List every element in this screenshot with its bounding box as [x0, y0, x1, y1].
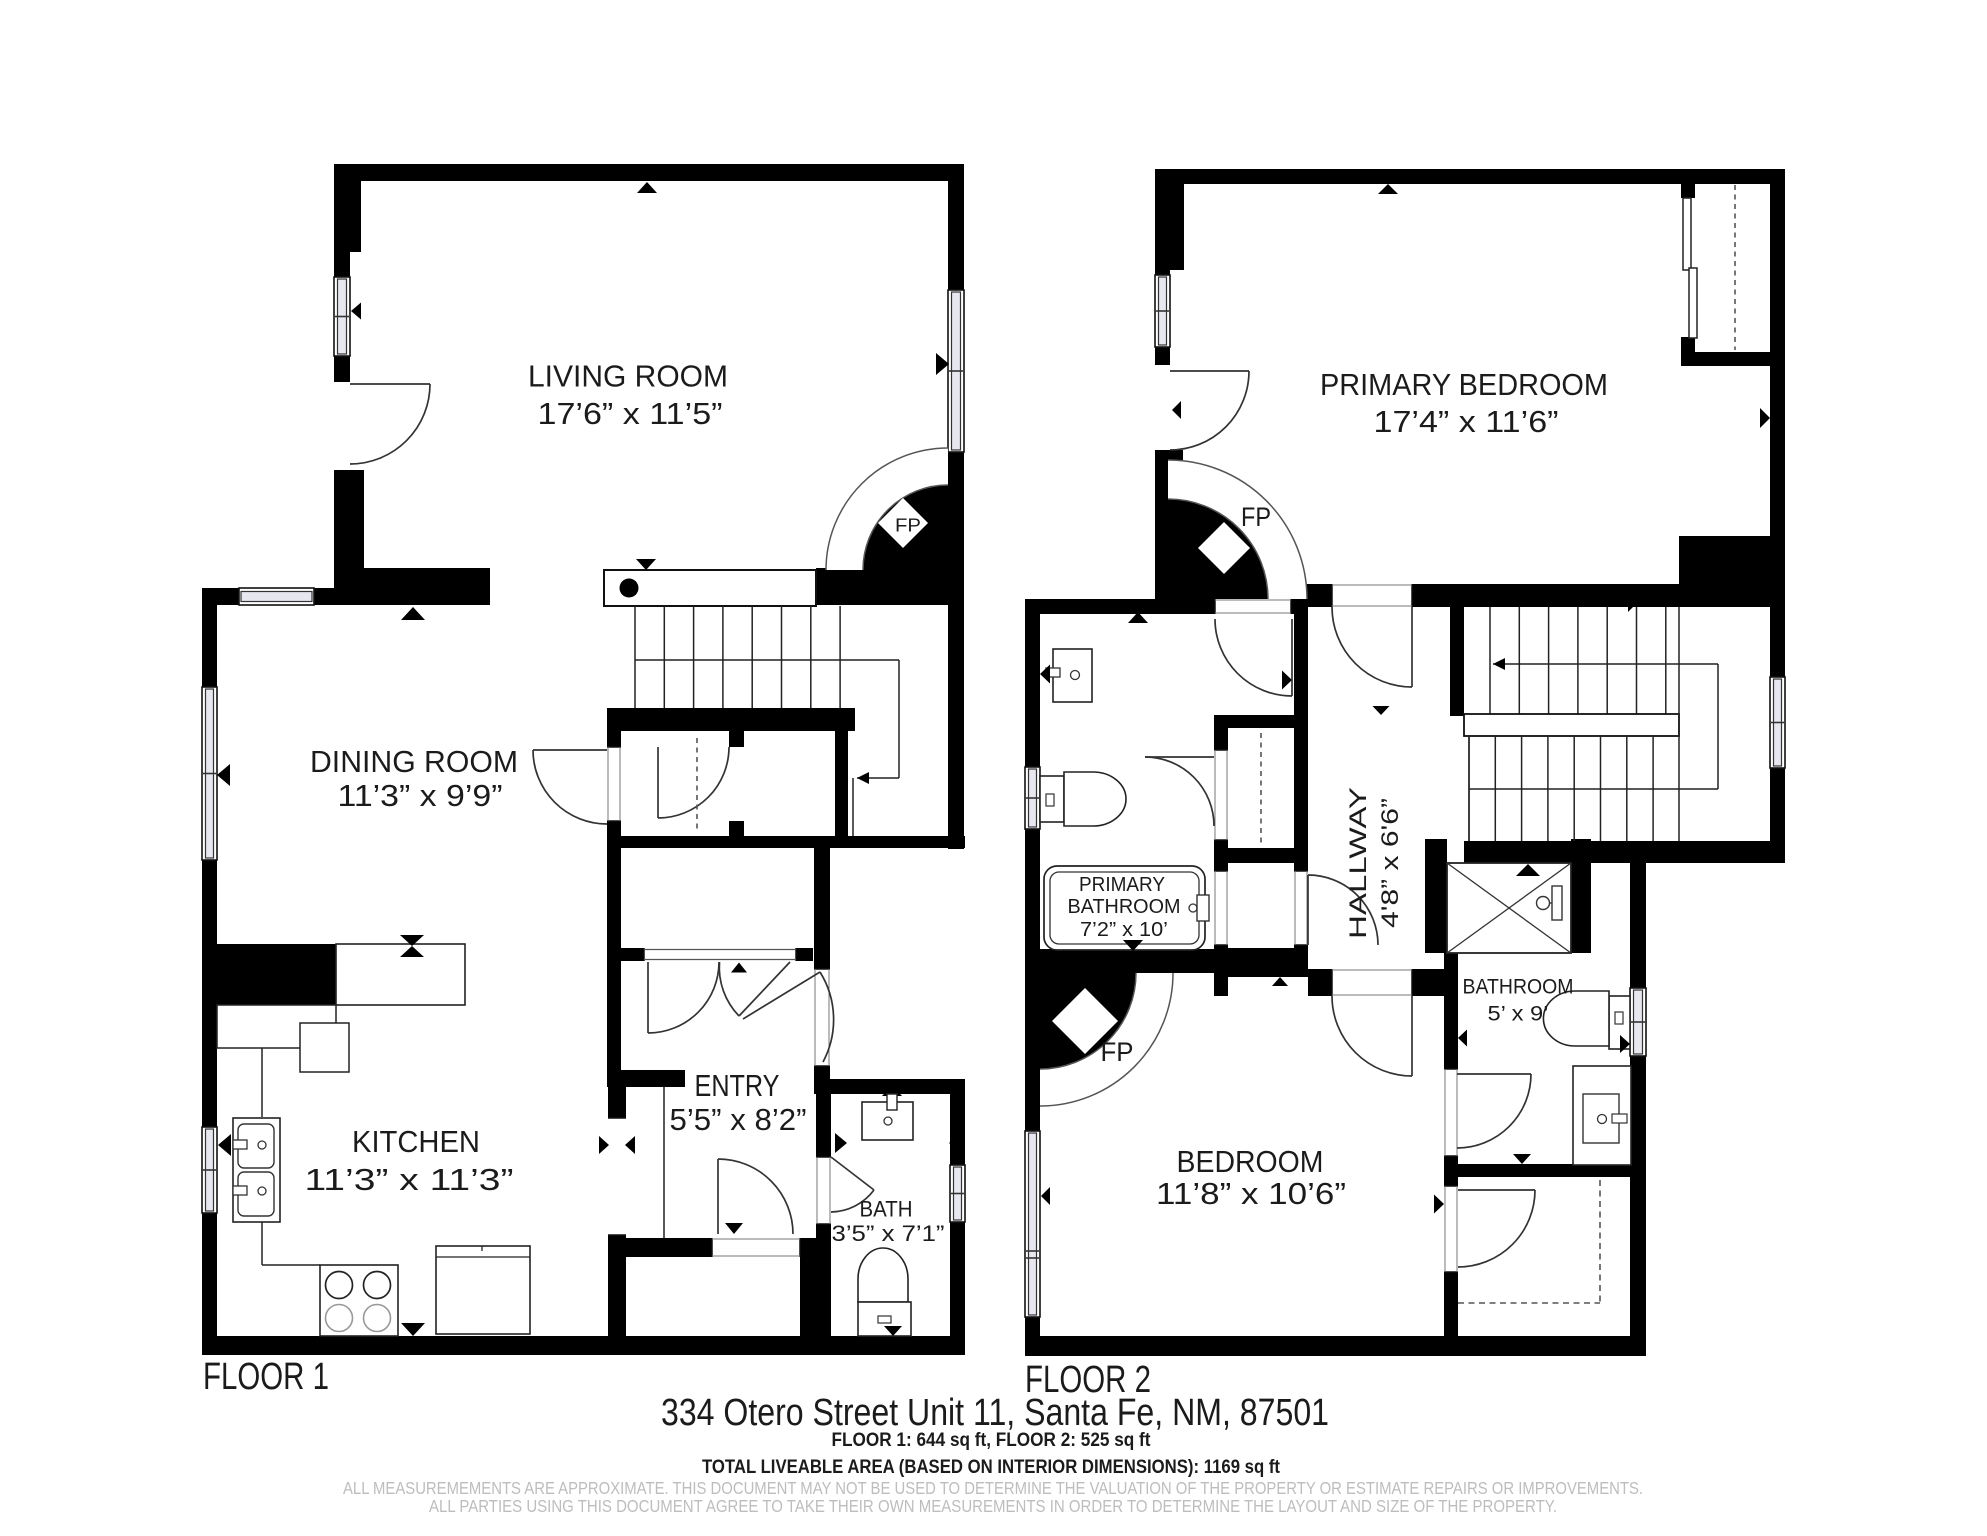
svg-text:ALL MEASUREMEMENTS ARE APPROXI: ALL MEASUREMEMENTS ARE APPROXIMATE. THIS…: [343, 1478, 1643, 1498]
svg-text:17’4” x 11’6”: 17’4” x 11’6”: [1374, 404, 1559, 439]
svg-text:11’8” x 10’6”: 11’8” x 10’6”: [1156, 1176, 1346, 1211]
svg-text:BEDROOM: BEDROOM: [1177, 1144, 1324, 1179]
svg-text:BATHROOM: BATHROOM: [1068, 896, 1181, 918]
svg-text:4'8” x 6'6”: 4'8” x 6'6”: [1377, 798, 1404, 928]
svg-text:FP: FP: [1101, 1037, 1134, 1067]
svg-text:3’5” x 7’1”: 3’5” x 7’1”: [832, 1221, 945, 1246]
svg-text:334 Otero Street Unit 11, Sant: 334 Otero Street Unit 11, Santa Fe, NM, …: [661, 1392, 1329, 1434]
svg-text:ENTRY: ENTRY: [695, 1068, 780, 1103]
svg-text:FP: FP: [895, 516, 921, 536]
svg-text:11’3” x 9’9”: 11’3” x 9’9”: [338, 778, 503, 813]
svg-text:DINING ROOM: DINING ROOM: [310, 744, 518, 779]
svg-text:FLOOR 1: 644 sq ft, FLOOR 2: 5: FLOOR 1: 644 sq ft, FLOOR 2: 525 sq ft: [832, 1430, 1152, 1451]
svg-text:TOTAL LIVEABLE AREA (BASED ON: TOTAL LIVEABLE AREA (BASED ON INTERIOR D…: [702, 1456, 1280, 1478]
svg-text:LIVING ROOM: LIVING ROOM: [528, 359, 728, 394]
svg-text:5’ x 9’: 5’ x 9’: [1488, 1003, 1549, 1026]
svg-text:PRIMARY BEDROOM: PRIMARY BEDROOM: [1320, 367, 1608, 402]
svg-text:BATHROOM: BATHROOM: [1463, 976, 1574, 999]
svg-text:11’3” x 11’3”: 11’3” x 11’3”: [305, 1162, 514, 1197]
svg-text:BATH: BATH: [860, 1197, 913, 1222]
svg-text:5’5” x 8’2”: 5’5” x 8’2”: [670, 1102, 807, 1137]
svg-text:FP: FP: [1241, 502, 1271, 532]
svg-text:PRIMARY: PRIMARY: [1079, 874, 1165, 896]
svg-text:7’2” x 10’: 7’2” x 10’: [1080, 919, 1168, 941]
svg-text:KITCHEN: KITCHEN: [352, 1124, 480, 1159]
svg-text:17’6” x 11’5”: 17’6” x 11’5”: [538, 396, 723, 431]
svg-text:ALL PARTIES USING THIS DOCUMEN: ALL PARTIES USING THIS DOCUMENT AGREE TO…: [429, 1496, 1557, 1516]
svg-text:HALLWAY: HALLWAY: [1345, 787, 1372, 939]
svg-text:FLOOR 1: FLOOR 1: [203, 1356, 329, 1398]
